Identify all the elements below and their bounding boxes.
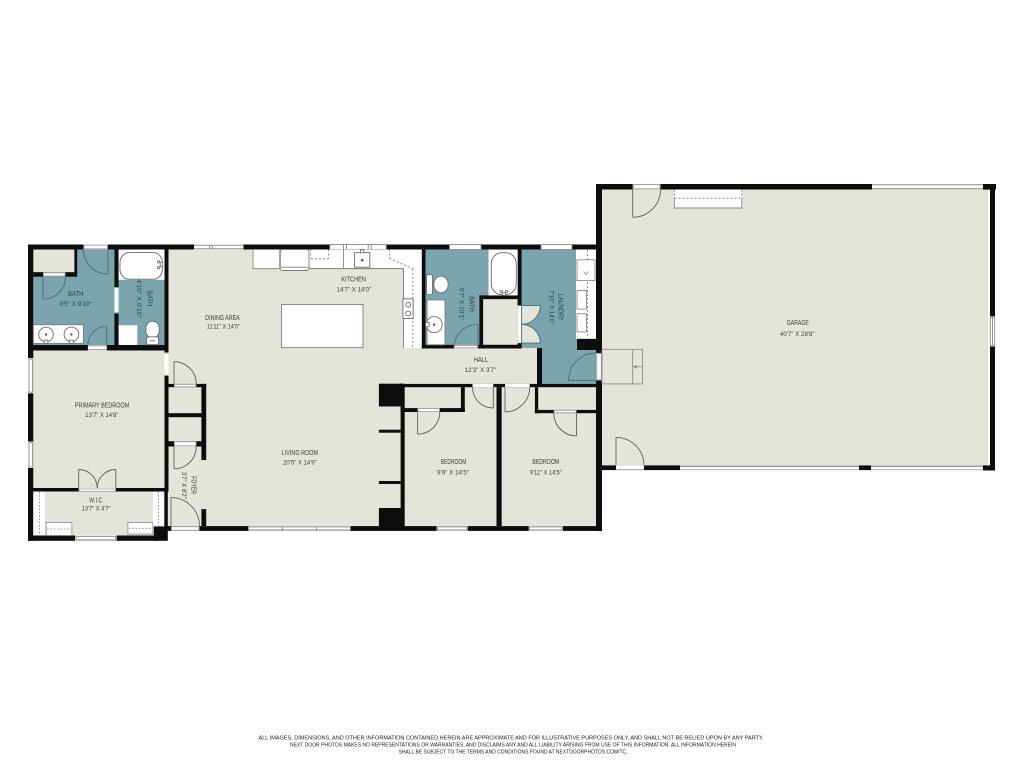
svg-text:BATH: BATH bbox=[467, 296, 474, 312]
svg-text:4'10" X 9'10": 4'10" X 9'10" bbox=[135, 279, 142, 319]
svg-text:14'7" X 14'0": 14'7" X 14'0" bbox=[337, 286, 372, 293]
svg-text:BATH: BATH bbox=[145, 291, 152, 307]
svg-text:LIVING ROOM: LIVING ROOM bbox=[282, 450, 319, 457]
svg-text:ALL IMAGES, DIMENSIONS, AND OT: ALL IMAGES, DIMENSIONS, AND OTHER INFORM… bbox=[259, 735, 764, 741]
svg-text:9'9" X 14'5": 9'9" X 14'5" bbox=[437, 470, 469, 477]
svg-text:PRIMARY BEDROOM: PRIMARY BEDROOM bbox=[75, 402, 130, 409]
svg-text:7'10" X 14'0": 7'10" X 14'0" bbox=[547, 290, 554, 325]
svg-text:HALL: HALL bbox=[474, 357, 489, 364]
svg-text:8'5" X 9'10": 8'5" X 9'10" bbox=[60, 301, 93, 308]
svg-text:11'11" X 14'0": 11'11" X 14'0" bbox=[207, 324, 240, 331]
svg-text:12'3" X 3'7": 12'3" X 3'7" bbox=[465, 367, 497, 374]
svg-text:40'7" X 28'8": 40'7" X 28'8" bbox=[780, 331, 815, 338]
svg-text:BEDROOM: BEDROOM bbox=[441, 459, 467, 466]
svg-text:BEDROOM: BEDROOM bbox=[532, 459, 559, 466]
svg-text:DINING AREA: DINING AREA bbox=[205, 315, 240, 322]
svg-text:LAUNDRY: LAUNDRY bbox=[556, 294, 563, 321]
svg-text:13'7" X 14'8": 13'7" X 14'8" bbox=[85, 412, 119, 419]
svg-text:KITCHEN: KITCHEN bbox=[341, 277, 366, 284]
svg-text:9'7" X 10'1": 9'7" X 10'1" bbox=[458, 288, 465, 322]
svg-text:13'7" X 4'7": 13'7" X 4'7" bbox=[82, 506, 111, 513]
svg-text:W.I.C.: W.I.C. bbox=[89, 498, 103, 505]
svg-text:20'5" X 14'9": 20'5" X 14'9" bbox=[283, 460, 317, 467]
svg-text:NEXT DOOR PHOTOS MAKES NO REPR: NEXT DOOR PHOTOS MAKES NO REPRESENTATION… bbox=[290, 742, 736, 748]
svg-text:FOYER: FOYER bbox=[189, 476, 196, 494]
svg-text:SHALL BE SUBJECT TO THE TERMS: SHALL BE SUBJECT TO THE TERMS AND CONDIT… bbox=[399, 749, 628, 755]
svg-text:GARAGE: GARAGE bbox=[787, 320, 809, 327]
svg-text:3'7" X 8'2": 3'7" X 8'2" bbox=[180, 472, 187, 500]
svg-text:BATH: BATH bbox=[68, 291, 83, 298]
svg-text:9'11" X 14'5": 9'11" X 14'5" bbox=[530, 470, 562, 477]
